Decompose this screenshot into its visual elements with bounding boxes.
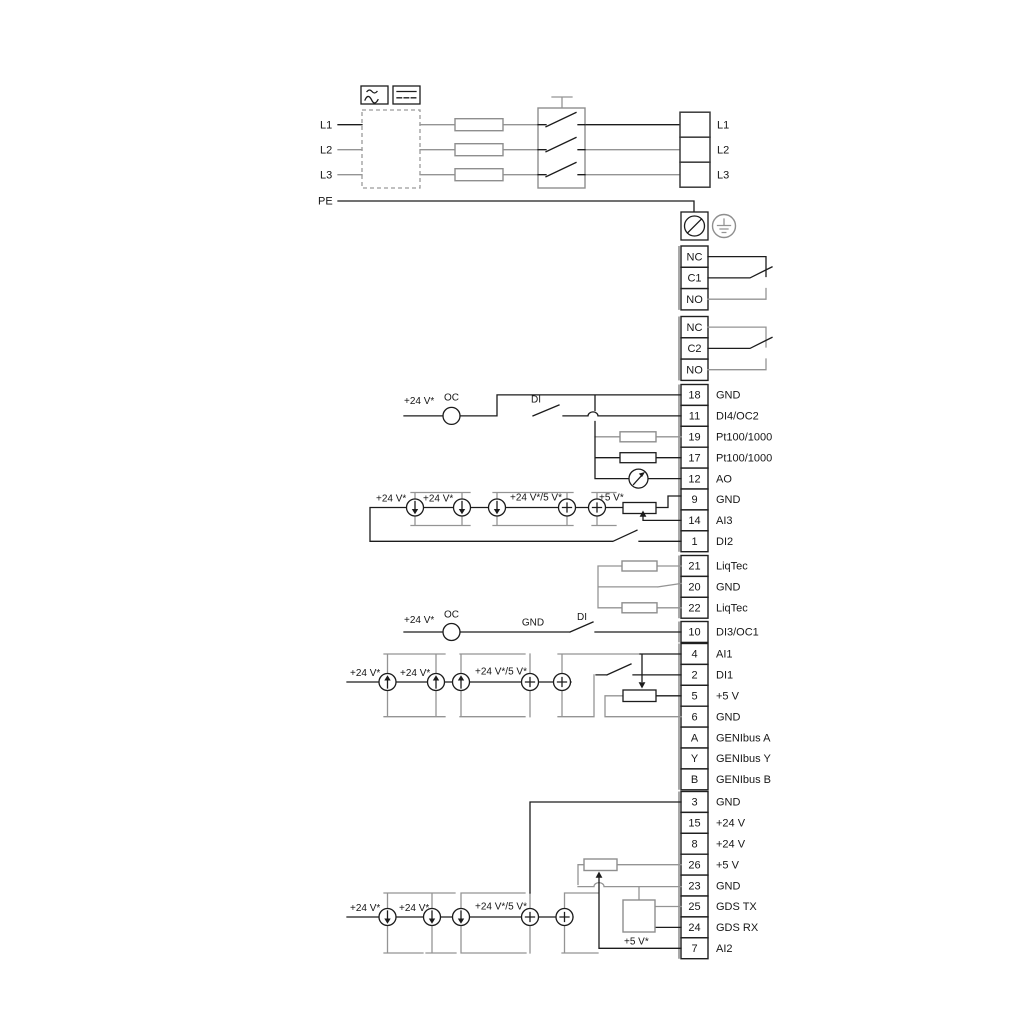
gnd-label: GND: [522, 618, 544, 629]
terminal-number: A: [691, 732, 699, 744]
terminal-label: GENIbus A: [716, 732, 771, 744]
resistor-symbol: [622, 603, 657, 613]
terminal-number: 12: [688, 473, 700, 485]
phase-label: L3: [717, 169, 729, 181]
supply-label: +24 V*: [350, 668, 380, 679]
terminal-label: Pt100/1000: [716, 452, 772, 464]
supply-label: +24 V*: [376, 494, 406, 505]
supply-label: +24 V*: [423, 494, 453, 505]
io-terminal-strip-1: 18 11 19 17 12 9 14 1 GND DI4/OC2 Pt100/…: [681, 385, 772, 552]
terminal-label: GDS TX: [716, 901, 757, 913]
terminal-number: 3: [691, 797, 697, 809]
terminal-label: GND: [716, 880, 741, 892]
phase-label: L2: [320, 144, 332, 156]
terminal-label: AO: [716, 473, 732, 485]
power-wires-gray: [338, 97, 680, 175]
terminal-number: 5: [691, 691, 697, 703]
terminal-label: LiqTec: [716, 561, 748, 573]
terminal-number: 4: [691, 649, 697, 661]
diagram-canvas: L1 L2 L3 PE L1 L2 L3 NC C1 NO NC C2 NO: [0, 0, 1024, 1024]
terminal-number: 22: [688, 603, 700, 615]
terminal-label: GDS RX: [716, 922, 759, 934]
current-source-icon: [454, 499, 471, 516]
voltage-source-icon: [556, 909, 573, 926]
relay-terminal-label: C1: [687, 273, 701, 285]
terminal-label: GND: [716, 494, 741, 506]
wiper-arrow-head: [639, 682, 646, 688]
wires-black: [370, 395, 681, 541]
terminal-number: 24: [688, 922, 700, 934]
mains-terminal: [680, 162, 710, 187]
relay2-block: NC C2 NO: [681, 317, 772, 381]
current-source-icon: [379, 674, 396, 691]
terminal-number: 8: [691, 839, 697, 851]
power-wires-black: [338, 125, 694, 212]
terminal-number: 25: [688, 901, 700, 913]
terminal-label: GND: [716, 390, 741, 402]
terminal-label: DI3/OC1: [716, 627, 759, 639]
relay-terminal-label: NC: [687, 322, 703, 334]
strip4-wiring: +24 V* +24 V* +24 V*/5 V*: [347, 654, 681, 717]
terminal-number: 17: [688, 452, 700, 464]
strip1-wiring: +24 V* OC DI +24 V* +24 V* +24 V*/5 V* +…: [370, 393, 681, 542]
phase-label: L2: [717, 144, 729, 156]
terminal-label: Pt100/1000: [716, 432, 772, 444]
terminal-number: 18: [688, 390, 700, 402]
terminal-number: 9: [691, 494, 697, 506]
wiring-diagram: L1 L2 L3 PE L1 L2 L3 NC C1 NO NC C2 NO: [0, 0, 1024, 1024]
relay-contact: [708, 257, 772, 278]
terminal-number: 21: [688, 561, 700, 573]
supply-label: +5 V*: [624, 937, 649, 948]
open-collector-icon: [443, 407, 460, 424]
current-source-icon: [379, 909, 396, 926]
relay-contact: [708, 337, 772, 348]
terminal-label: DI1: [716, 670, 733, 682]
terminal-number: 11: [689, 411, 700, 423]
emc-filter-box: [362, 110, 420, 188]
supply-label: +24 V*: [399, 903, 429, 914]
wires-gray: [598, 566, 681, 608]
terminal-label: +5 V: [716, 691, 740, 703]
io-terminal-strip-4: 4 2 5 6 A Y B AI1 DI1 +5 V GND GENIbus A…: [681, 644, 771, 790]
voltage-source-icon: [554, 674, 571, 691]
relay-terminal-label: NO: [686, 365, 703, 377]
terminal-number: 10: [688, 627, 700, 639]
potentiometer-symbol: [584, 859, 617, 871]
potentiometer-symbol: [623, 690, 656, 702]
di-label: DI: [577, 612, 587, 623]
potentiometer-symbol: [623, 503, 656, 514]
io-terminal-strip-2: 21 20 22 LiqTec GND LiqTec: [598, 556, 748, 619]
open-collector-icon: [443, 624, 460, 641]
terminal-number: 2: [691, 670, 697, 682]
power-input-section: L1 L2 L3 PE L1 L2 L3: [318, 86, 729, 212]
relay-terminal-label: NC: [687, 251, 703, 263]
supply-label: +24 V*/5 V*: [475, 667, 527, 678]
phase-label: L3: [320, 169, 332, 181]
io-terminal-strip-5: 3 15 8 26 23 25 24 7 GND +24 V +24 V +5 …: [681, 792, 759, 959]
terminal-number: 1: [691, 536, 697, 548]
supply-label: +5 V*: [599, 493, 624, 504]
terminal-label: AI3: [716, 515, 733, 527]
supply-label: +24 V*/5 V*: [510, 493, 562, 504]
mains-terminal: [680, 112, 710, 137]
relay-terminal-label: NO: [686, 294, 703, 306]
relay-terminal-label: C2: [687, 343, 701, 355]
gds-module-box: [623, 900, 655, 932]
supply-label: +24 V*/5 V*: [475, 902, 527, 913]
terminal-number: 19: [688, 432, 700, 444]
terminal-label: +24 V: [716, 818, 746, 830]
mains-terminal: [680, 137, 710, 162]
terminal-label: GND: [716, 711, 741, 723]
terminal-number: 14: [688, 515, 700, 527]
resistor-symbol: [620, 432, 656, 442]
ac-symbol-box: [361, 86, 388, 104]
supply-label: +24 V*: [404, 615, 434, 626]
fuse-symbol: [455, 144, 503, 156]
current-source-icon: [407, 499, 424, 516]
relay-contact: [708, 289, 766, 300]
oc-label: OC: [444, 610, 459, 621]
terminal-label: GND: [716, 582, 741, 594]
pe-label: PE: [318, 196, 333, 208]
current-source-icon: [453, 909, 470, 926]
terminal-number: 15: [688, 818, 700, 830]
dc-symbol-box: [393, 86, 420, 104]
terminal-label: DI4/OC2: [716, 411, 759, 423]
terminal-number: Y: [691, 753, 699, 765]
current-source-icon: [453, 674, 470, 691]
terminal-number: 20: [688, 582, 700, 594]
terminal-number: 7: [691, 943, 697, 955]
fuse-symbol: [455, 119, 503, 131]
terminal-label: +5 V: [716, 859, 740, 871]
fuse-symbol: [455, 169, 503, 181]
terminal-label: +24 V: [716, 839, 746, 851]
di-label: DI: [531, 395, 541, 406]
ground-section: [681, 212, 736, 240]
resistor-symbol: [620, 453, 656, 463]
terminal-label: LiqTec: [716, 603, 748, 615]
terminal-number: 26: [688, 859, 700, 871]
terminal-label: GND: [716, 797, 741, 809]
relay1-block: NC C1 NO: [681, 246, 772, 310]
resistor-symbol: [622, 561, 657, 571]
terminal-label: GENIbus Y: [716, 753, 771, 765]
supply-label: +24 V*: [404, 396, 434, 407]
terminal-number: B: [691, 774, 698, 786]
current-source-icon: [489, 499, 506, 516]
terminal-label: AI1: [716, 649, 733, 661]
terminal-label: GENIbus B: [716, 774, 771, 786]
terminal-number: 6: [691, 711, 697, 723]
supply-label: +24 V*: [400, 668, 430, 679]
phase-label: L1: [320, 119, 332, 131]
supply-label: +24 V*: [350, 903, 380, 914]
wiper-arrow-head: [596, 872, 603, 878]
terminal-label: DI2: [716, 536, 733, 548]
terminal-label: AI2: [716, 943, 733, 955]
strip5-wiring: +24 V* +24 V* +24 V*/5 V* +5 V*: [347, 802, 681, 953]
oc-label: OC: [444, 393, 459, 404]
phase-label: L1: [717, 119, 729, 131]
terminal-number: 23: [688, 880, 700, 892]
